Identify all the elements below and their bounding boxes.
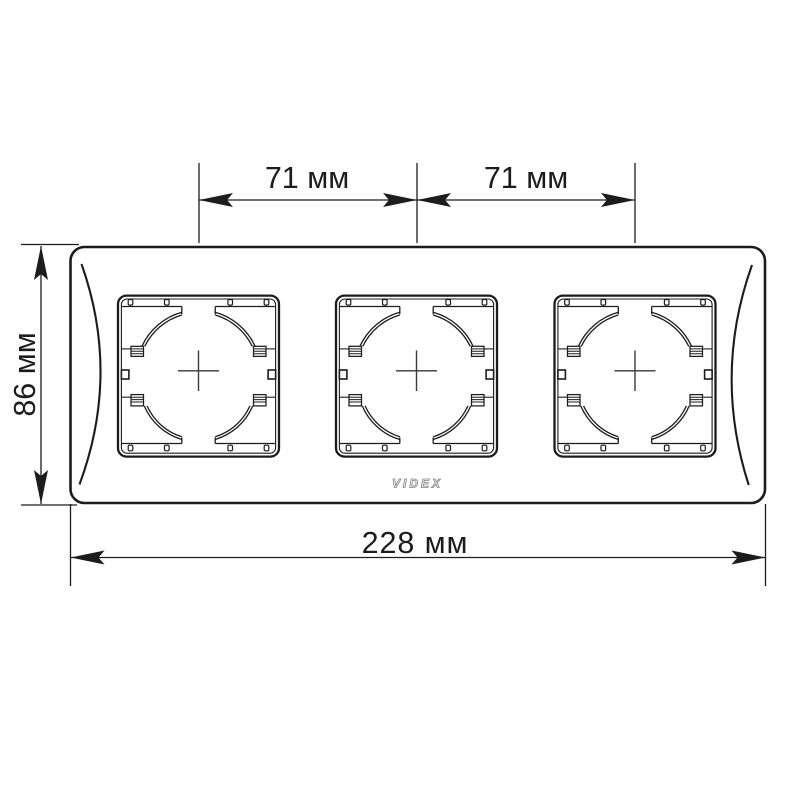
svg-text:86 мм: 86 мм (8, 332, 42, 416)
svg-text:VIDEX: VIDEX (392, 477, 443, 491)
svg-text:71 мм: 71 мм (265, 161, 349, 195)
svg-text:71 мм: 71 мм (484, 161, 568, 195)
svg-text:228 мм: 228 мм (362, 526, 469, 560)
